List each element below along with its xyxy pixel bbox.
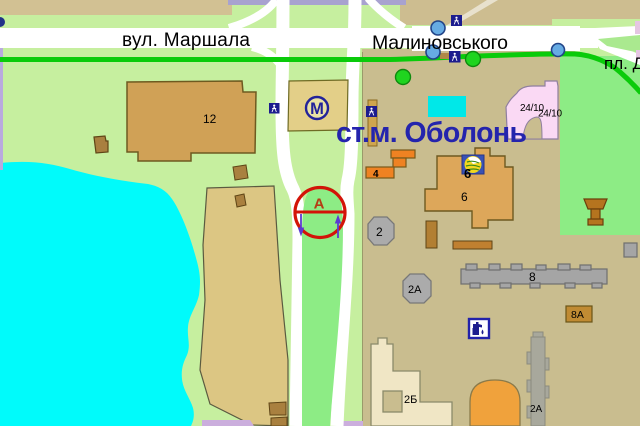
svg-text:6: 6 [464,166,471,181]
svg-text:А: А [314,196,325,213]
svg-text:вул. Маршала: вул. Маршала [122,30,250,51]
svg-text:2А: 2А [408,284,422,296]
svg-text:2Б: 2Б [404,394,417,406]
svg-text:ст.м. Оболонь: ст.м. Оболонь [336,117,527,149]
svg-text:12: 12 [203,112,217,126]
svg-text:4: 4 [373,169,379,180]
svg-text:М: М [310,100,324,118]
svg-text:6: 6 [461,190,468,204]
svg-text:8А: 8А [571,309,584,321]
svg-text:2: 2 [376,225,383,239]
svg-text:8: 8 [529,270,536,284]
svg-text:24/10: 24/10 [538,109,562,120]
svg-text:Малиновського: Малиновського [372,32,508,54]
svg-text:2А: 2А [530,404,543,415]
svg-text:пл. Д: пл. Д [604,54,640,73]
